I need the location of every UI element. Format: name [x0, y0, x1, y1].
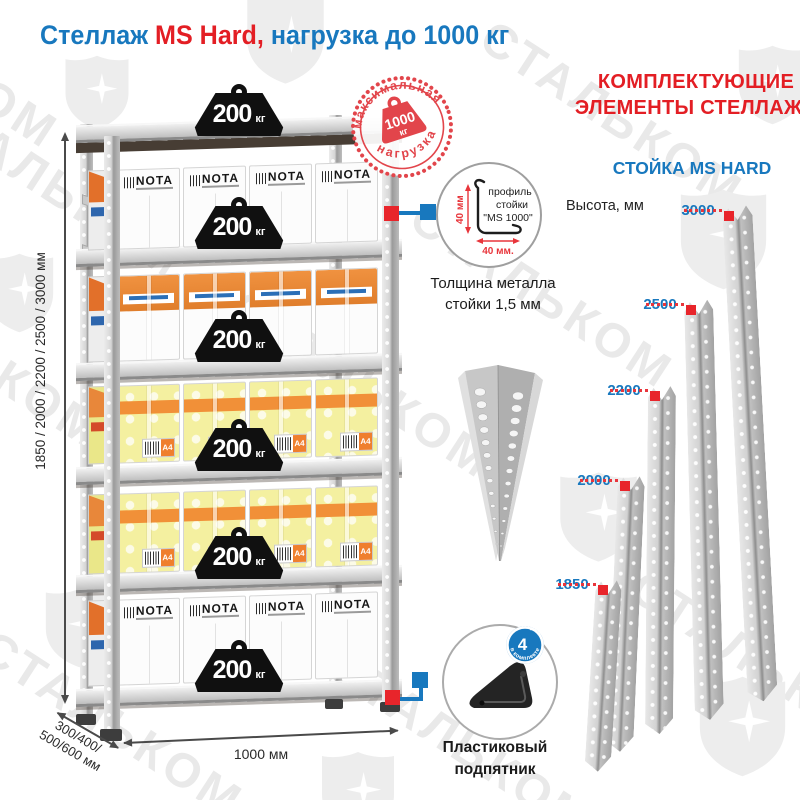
title-load: нагрузка до 1000 кг — [264, 20, 509, 50]
weight-body: 200кг — [192, 649, 286, 692]
paper-size-tag: A4 — [293, 545, 306, 562]
post-top-marker — [598, 585, 608, 595]
shelf-load-value: 200 — [213, 656, 252, 685]
shelf-load-weight-icon: 200кг — [192, 84, 286, 136]
perforation-hole — [487, 478, 493, 482]
badge-count: 4 — [518, 635, 528, 654]
post-top-marker — [650, 391, 660, 401]
paper-label: A4 — [340, 432, 373, 452]
shelf-load-weight-icon: 200кг — [192, 310, 286, 362]
title-model: MS Hard, — [155, 20, 264, 50]
page-title: Стеллаж MS Hard, нагрузка до 1000 кг — [40, 20, 509, 51]
carton-box: A4 — [117, 384, 180, 464]
box-head: NOTA — [184, 597, 245, 623]
shield-logo-icon — [62, 52, 132, 133]
dotted-leader-line — [684, 209, 722, 212]
barcode-icon — [124, 177, 136, 188]
post-top-marker — [620, 481, 630, 491]
connector-line — [398, 697, 422, 701]
perforation-hole — [496, 543, 498, 545]
height-options-label: 1850 / 2000 / 2200 / 2500 / 3000 мм — [33, 138, 48, 584]
max-load-stamp: максимальная нагрузка 1000 кг — [347, 72, 457, 182]
perforation-hole — [480, 427, 489, 433]
paper-label: A4 — [142, 438, 175, 458]
perforation-hole — [494, 530, 497, 532]
shelf-load-unit: кг — [255, 556, 265, 568]
title-product: Стеллаж — [40, 20, 155, 50]
perforation-hole — [476, 401, 486, 408]
carton-box: A4 — [315, 485, 378, 567]
carton-box: A4 — [315, 377, 378, 457]
height-dimension-line — [64, 140, 66, 696]
upright-post-perspective — [448, 362, 552, 567]
box-crease — [149, 196, 150, 248]
shelf-load-value: 200 — [213, 543, 252, 572]
post-top-marker — [686, 305, 696, 315]
paper-label: A4 — [142, 548, 175, 568]
paper-size-tag: A4 — [359, 543, 372, 560]
perforation-hole — [504, 494, 509, 498]
rack-post-front-left — [104, 136, 120, 734]
arrow-up-icon — [61, 132, 69, 141]
dotted-leader-line — [580, 479, 618, 482]
barcode-icon — [190, 604, 202, 615]
height-axis-label: Высота, мм — [566, 198, 644, 214]
weight-body: 200кг — [192, 206, 286, 249]
box-brand-label: NOTA — [136, 173, 173, 189]
shelf-load-unit: кг — [255, 669, 265, 681]
profile-label-3: "MS 1000" — [483, 212, 533, 224]
arrow-left-icon — [123, 739, 132, 747]
profile-label-1: профиль — [488, 186, 532, 198]
weight-body: 200кг — [192, 93, 286, 136]
paper-size-tag: A4 — [161, 439, 174, 456]
perforation-hole — [490, 504, 495, 507]
carton-box: A4 — [117, 492, 180, 574]
barcode-icon — [124, 607, 136, 618]
carton-box — [315, 267, 378, 355]
paper-size-tag: A4 — [161, 549, 174, 566]
profile-dim-vertical: 40 мм — [455, 195, 466, 224]
paper-size-tag: A4 — [359, 433, 372, 450]
box-brand-label: NOTA — [334, 597, 371, 613]
perforation-hole — [506, 469, 513, 474]
box-head: NOTA — [184, 167, 245, 193]
components-header: КОМПЛЕКТУЮЩИЕ ЭЛЕМЕНТЫ СТЕЛЛАЖА — [540, 69, 800, 121]
shield-logo-icon — [0, 250, 57, 336]
plastic-foot-caption: Пластиковый подпятник — [415, 737, 575, 781]
shelf-load-unit: кг — [255, 226, 265, 238]
box-head: NOTA — [118, 169, 179, 195]
post-marker — [384, 206, 399, 221]
post-top-marker — [724, 211, 734, 221]
carton-box — [117, 274, 180, 362]
weight-body: 200кг — [192, 428, 286, 471]
barcode-icon — [145, 551, 159, 564]
perforation-hole — [511, 405, 521, 412]
barcode-icon — [256, 602, 268, 613]
weight-body: 200кг — [192, 536, 286, 579]
perforation-hole — [503, 507, 508, 510]
perforation-hole — [485, 466, 492, 471]
barcode-icon — [322, 600, 334, 611]
shelf-load-weight-icon: 200кг — [192, 640, 286, 692]
callout-marker — [420, 204, 436, 220]
perforation-hole — [489, 491, 494, 495]
perforation-hole — [507, 456, 514, 461]
perforation-hole — [509, 430, 518, 436]
box-crease — [347, 619, 348, 677]
dotted-leader-line — [646, 303, 684, 306]
upright-post — [645, 386, 676, 734]
barcode-icon — [190, 174, 202, 185]
shelf-load-unit: кг — [255, 448, 265, 460]
perforation-hole — [500, 545, 502, 547]
paper-size-tag: A4 — [293, 435, 306, 452]
perforation-hole — [510, 418, 520, 425]
callout-marker — [412, 672, 428, 688]
perforation-hole — [505, 481, 511, 485]
shelf-load-weight-icon: 200кг — [192, 419, 286, 471]
box-head: NOTA — [118, 599, 179, 625]
box-head: NOTA — [316, 592, 377, 618]
perforation-hole — [513, 392, 524, 400]
carton-box: NOTA — [117, 598, 180, 686]
perforation-hole — [508, 443, 516, 449]
box-strap — [147, 276, 151, 360]
paper-label: A4 — [340, 542, 373, 562]
profile-label-2: стойки — [496, 199, 528, 211]
perforation-hole — [501, 532, 504, 534]
shelf-load-weight-icon: 200кг — [192, 527, 286, 579]
box-crease — [149, 626, 150, 684]
barcode-icon — [256, 172, 268, 183]
perforation-hole — [502, 520, 506, 523]
weight-body: 200кг — [192, 319, 286, 362]
box-crease — [347, 189, 348, 241]
box-brand-label: NOTA — [136, 603, 173, 619]
thickness-note: Толщина металла стойки 1,5 мм — [413, 273, 573, 315]
barcode-icon — [343, 545, 357, 558]
box-head: NOTA — [250, 165, 311, 191]
shelf-load-value: 200 — [213, 326, 252, 355]
perforation-hole — [482, 440, 490, 446]
carton-box: NOTA — [117, 168, 180, 250]
box-brand-label: NOTA — [268, 169, 305, 185]
shelf-load-value: 200 — [213, 213, 252, 242]
barcode-icon — [343, 435, 357, 448]
carton-box: NOTA — [315, 591, 378, 679]
shelf-load-unit: кг — [255, 339, 265, 351]
width-label: 1000 мм — [214, 746, 308, 762]
shelf-load-value: 200 — [213, 100, 252, 129]
profile-dim-horizontal: 40 мм. — [482, 246, 514, 257]
rack-foot — [325, 699, 343, 709]
perforation-hole — [475, 388, 486, 396]
arrow-right-icon — [390, 727, 399, 735]
perforation-hole — [483, 453, 490, 458]
dotted-leader-line — [558, 583, 596, 586]
box-head: NOTA — [250, 595, 311, 621]
shelf-load-value: 200 — [213, 435, 252, 464]
dotted-leader-line — [610, 389, 648, 392]
shield-logo-icon — [318, 748, 398, 800]
box-brand-label: NOTA — [268, 599, 305, 615]
post-section-title: СТОЙКА MS HARD — [536, 158, 800, 179]
perforation-hole — [492, 517, 496, 520]
product-infographic: СТАЛЬКОМСТАЛЬКОМСТАЛЬКОМСТАЛЬКОМСТАЛЬКОМ… — [0, 0, 800, 800]
perforation-hole — [478, 414, 488, 421]
barcode-icon — [322, 170, 334, 181]
arrow-down-icon — [61, 695, 69, 704]
shelf-load-weight-icon: 200кг — [192, 197, 286, 249]
box-brand-label: NOTA — [202, 171, 239, 187]
shelf-load-unit: кг — [255, 113, 265, 125]
box-strap — [345, 269, 349, 353]
foot-marker — [385, 690, 400, 705]
quantity-badge: штуки в комплекте 4 — [505, 625, 545, 665]
box-brand-label: NOTA — [202, 601, 239, 617]
barcode-icon — [145, 441, 159, 454]
